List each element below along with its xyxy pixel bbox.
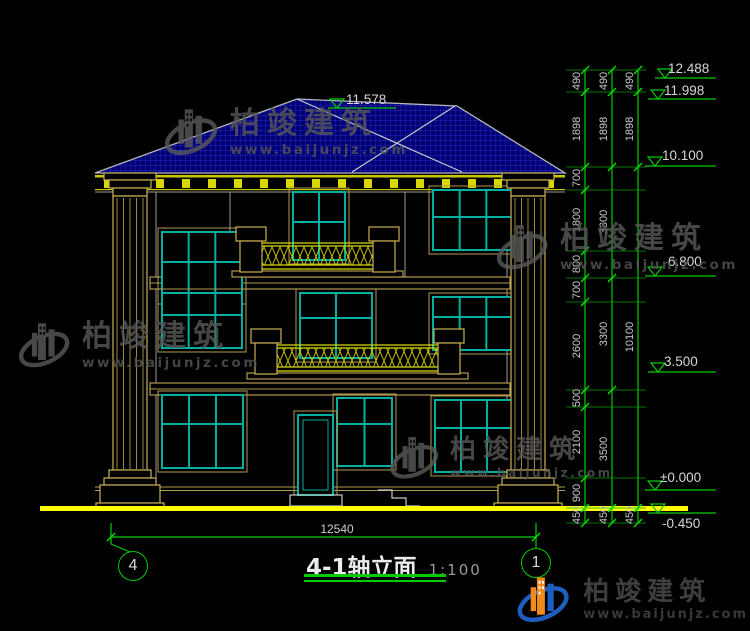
elevation-label: -0.450 — [662, 516, 700, 531]
dim-label: 700 — [571, 169, 583, 187]
entry-door — [290, 411, 342, 506]
watermark: 柏竣建筑 www.baijunjz.com — [14, 318, 260, 374]
elevation-label: 10.100 — [662, 148, 703, 163]
watermark: 柏竣建筑 www.baijunjz.com — [492, 220, 738, 276]
dim-label: 1898 — [624, 117, 636, 141]
dim-label: 900 — [571, 484, 583, 502]
dim-label: 1898 — [598, 117, 610, 141]
watermark-brand: 柏竣建筑 — [82, 322, 260, 352]
watermark: 柏竣建筑 www.baijunjz.com — [160, 104, 408, 162]
elevation-label: 12.488 — [668, 61, 709, 76]
dim-label: 3300 — [598, 322, 610, 346]
dim-label: 500 — [571, 389, 583, 407]
brand-footer: 柏竣建筑 www.baijunjz.com — [513, 572, 748, 629]
dim-label: 700 — [571, 281, 583, 299]
brand-name: 柏竣建筑 — [583, 579, 748, 605]
dim-label: 450 — [598, 506, 610, 524]
title-underline — [304, 574, 446, 577]
dim-label: 10100 — [624, 322, 636, 353]
watermark-logo-icon — [386, 432, 444, 485]
watermark-url: www.baijunjz.com — [82, 355, 260, 371]
watermark-url: www.baijunjz.com — [450, 466, 613, 480]
overall-width-dim: 12540 — [312, 522, 362, 536]
elevation-label: ±0.000 — [660, 470, 701, 485]
cad-elevation-drawing: 490 1898 700 1800 800 700 2600 500 2100 … — [0, 0, 750, 631]
watermark-logo-icon — [492, 220, 554, 276]
elevation-label: 11.998 — [664, 83, 704, 98]
watermark-url: www.baijunjz.com — [560, 257, 738, 273]
watermark-brand: 柏竣建筑 — [230, 109, 408, 139]
dim-label: 490 — [571, 72, 583, 90]
dim-label: 450 — [571, 506, 583, 524]
elevation-label: 3.500 — [664, 354, 698, 369]
watermark-brand: 柏竣建筑 — [450, 437, 613, 463]
watermark-brand: 柏竣建筑 — [560, 224, 738, 254]
brand-logo-icon — [513, 572, 575, 629]
dim-label: 450 — [624, 506, 636, 524]
dim-label: 2600 — [571, 334, 583, 358]
dim-label: 490 — [598, 72, 610, 90]
axis-bubble-4: 4 — [118, 551, 148, 581]
brand-url: www.baijunjz.com — [583, 607, 748, 622]
entry-steps — [378, 490, 420, 506]
title-underline — [304, 580, 446, 582]
watermark: 柏竣建筑 www.baijunjz.com — [386, 432, 613, 485]
watermark-logo-icon — [160, 104, 224, 162]
watermark-url: www.baijunjz.com — [230, 142, 408, 158]
dim-label: 490 — [624, 72, 636, 90]
dim-label: 1898 — [571, 117, 583, 141]
watermark-logo-icon — [14, 318, 76, 374]
ground-line — [40, 506, 688, 511]
title-text: 4-1轴立面 — [306, 555, 417, 581]
